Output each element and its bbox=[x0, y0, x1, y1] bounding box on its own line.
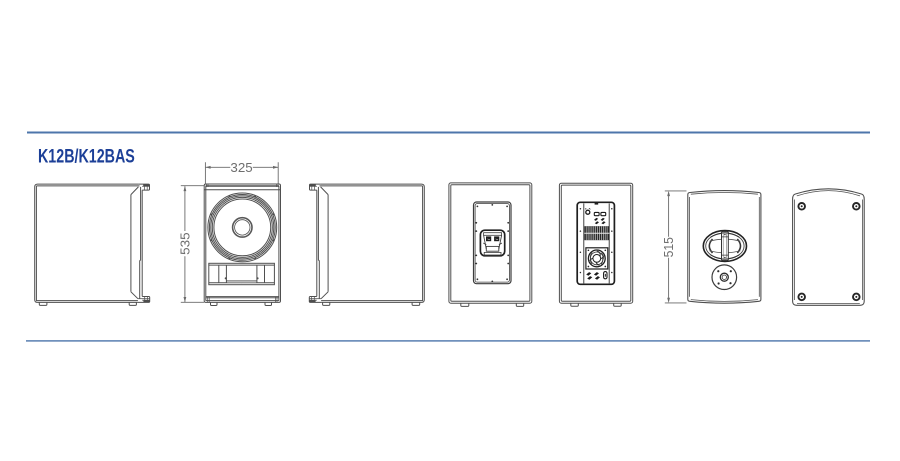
svg-text:535: 535 bbox=[177, 232, 192, 255]
svg-text:K12B/K12BAS: K12B/K12BAS bbox=[38, 146, 135, 167]
svg-text:515: 515 bbox=[661, 237, 676, 257]
svg-text:325: 325 bbox=[230, 160, 252, 175]
